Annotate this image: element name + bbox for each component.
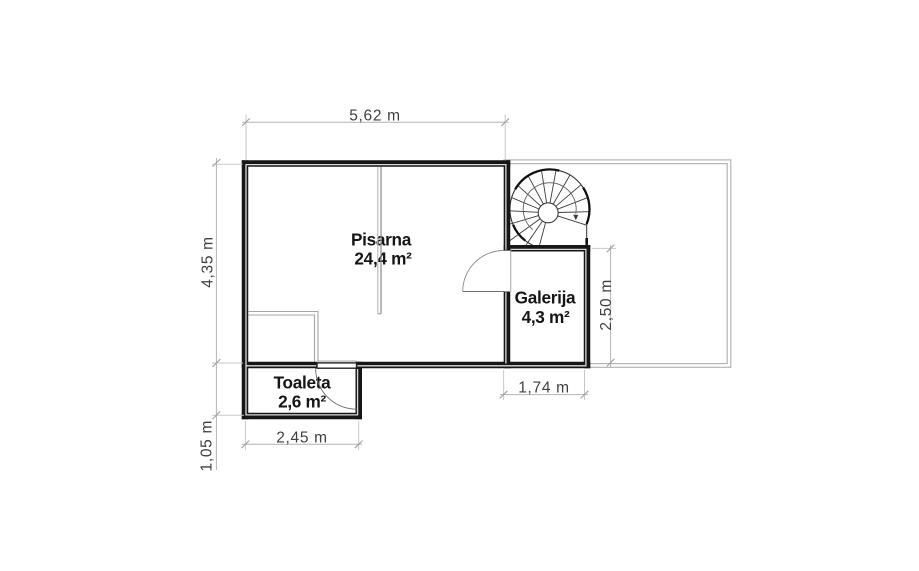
svg-text:5,62 m: 5,62 m — [349, 107, 401, 124]
svg-text:Galerija: Galerija — [515, 287, 576, 307]
svg-text:24,4 m²: 24,4 m² — [354, 249, 412, 269]
svg-text:2,45 m: 2,45 m — [276, 430, 328, 447]
svg-text:1,05 m: 1,05 m — [199, 420, 216, 472]
svg-text:1,74 m: 1,74 m — [518, 379, 570, 396]
svg-text:Toaleta: Toaleta — [274, 373, 332, 393]
svg-text:4,35 m: 4,35 m — [200, 236, 217, 288]
svg-text:4,3 m²: 4,3 m² — [522, 307, 570, 327]
svg-text:2,6 m²: 2,6 m² — [278, 392, 326, 412]
svg-text:2,50 m: 2,50 m — [598, 279, 615, 331]
